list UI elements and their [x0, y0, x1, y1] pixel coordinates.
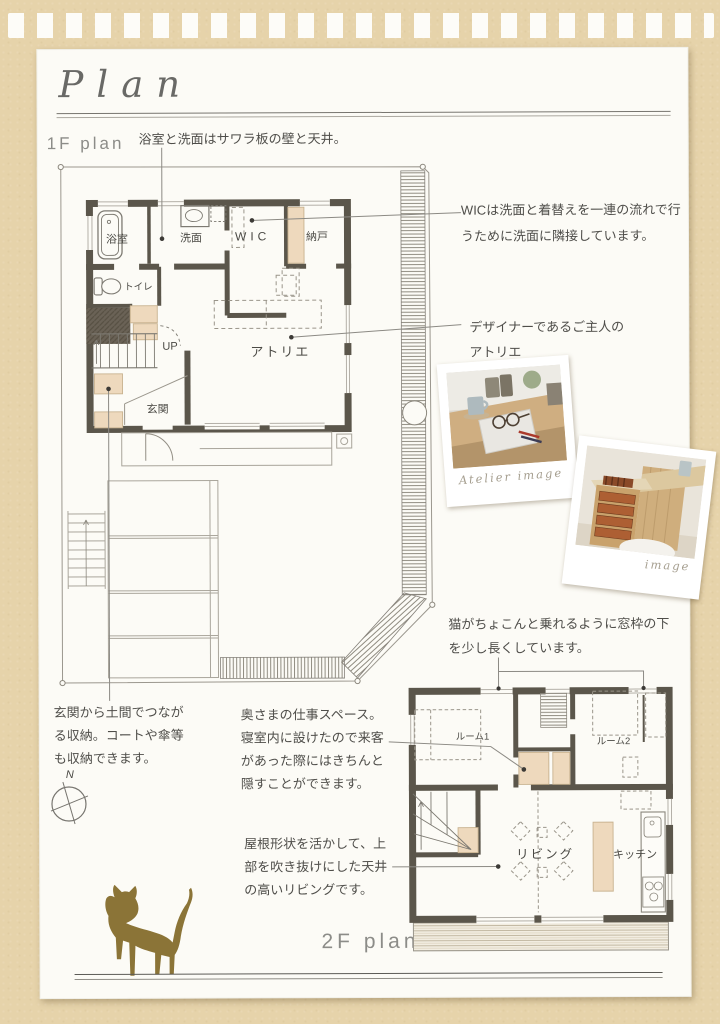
toilet-fixture [94, 278, 121, 295]
garden-terraces [108, 481, 219, 678]
photo-cabinet-image [575, 445, 706, 559]
compass-icon: N [41, 764, 101, 826]
floor-1-label: 1F plan [47, 134, 125, 154]
photo-atelier-caption: Atelier image [445, 465, 578, 489]
bottom-rule [75, 972, 663, 982]
house-1f: 浴室 洗面 WIC 納戸 トイレ UP アトリエ 玄関 [85, 198, 353, 430]
room-label-closet: 納戸 [306, 230, 328, 243]
note-bath-walls: 浴室と洗面はサワラ板の壁と天井。 [139, 127, 347, 151]
balcony [413, 922, 668, 951]
note-workspace: 奥さまの仕事スペース。寝室内に設けたので来客があった際にはきちんと隠すことができ… [241, 703, 391, 796]
note-living-ceiling: 屋根形状を活かして、上部を吹き抜けにした天井の高いリビングです。 [244, 832, 394, 902]
photo-atelier: Atelier image [437, 355, 579, 507]
room-label-atelier: アトリエ [250, 344, 310, 359]
page-background: { "title": "Plan", "labels": { "plan1": … [0, 0, 720, 1024]
floor-plan-1f: 浴室 洗面 WIC 納戸 トイレ UP アトリエ 玄関 [54, 155, 446, 696]
room-label-living: リビング [516, 847, 574, 861]
photo-cabinet: image [562, 435, 717, 599]
kitchen-counter [641, 812, 665, 912]
floor-plan-2f: ルーム1 ルーム2 リビング キッチン [401, 679, 687, 975]
note-cat-window: 猫がちょこんと乗れるように窓枠の下を少し長くしています。 [448, 612, 676, 661]
room-label-bath: 浴室 [106, 232, 128, 246]
page-title: Plan [58, 63, 193, 106]
room-label-up: UP [162, 341, 177, 353]
doma-floor [86, 308, 130, 344]
room-label-kitchen: キッチン [613, 848, 657, 861]
note-doma-storage: 玄関から土間でつながる収納。コートや傘等も収納できます。 [54, 701, 194, 771]
porch [122, 432, 352, 466]
plan-sheet: Plan 1F plan 2F plan [36, 47, 691, 999]
note-wic: WICは洗面と着替えを一連の流れで行うために洗面に隣接しています。 [461, 197, 685, 250]
room-label-washroom: 洗面 [180, 232, 202, 245]
title-underline [57, 111, 671, 120]
cat-silhouette-icon [94, 884, 209, 979]
stair-void [541, 693, 567, 727]
house-2f: ルーム1 ルーム2 リビング キッチン [408, 686, 675, 924]
room-label-room2: ルーム2 [597, 736, 631, 747]
top-perforation-border [8, 13, 714, 38]
photo-atelier-image [446, 364, 567, 468]
room-label-toilet: トイレ [124, 282, 153, 293]
room-label-entrance: 玄関 [147, 402, 169, 416]
compass-north-label: N [66, 769, 74, 781]
room-label-wic: WIC [235, 229, 270, 243]
note-atelier: デザイナーであるご主人のアトリエ [469, 315, 633, 365]
garden-steps [68, 511, 105, 589]
room-label-room1: ルーム1 [456, 732, 490, 743]
